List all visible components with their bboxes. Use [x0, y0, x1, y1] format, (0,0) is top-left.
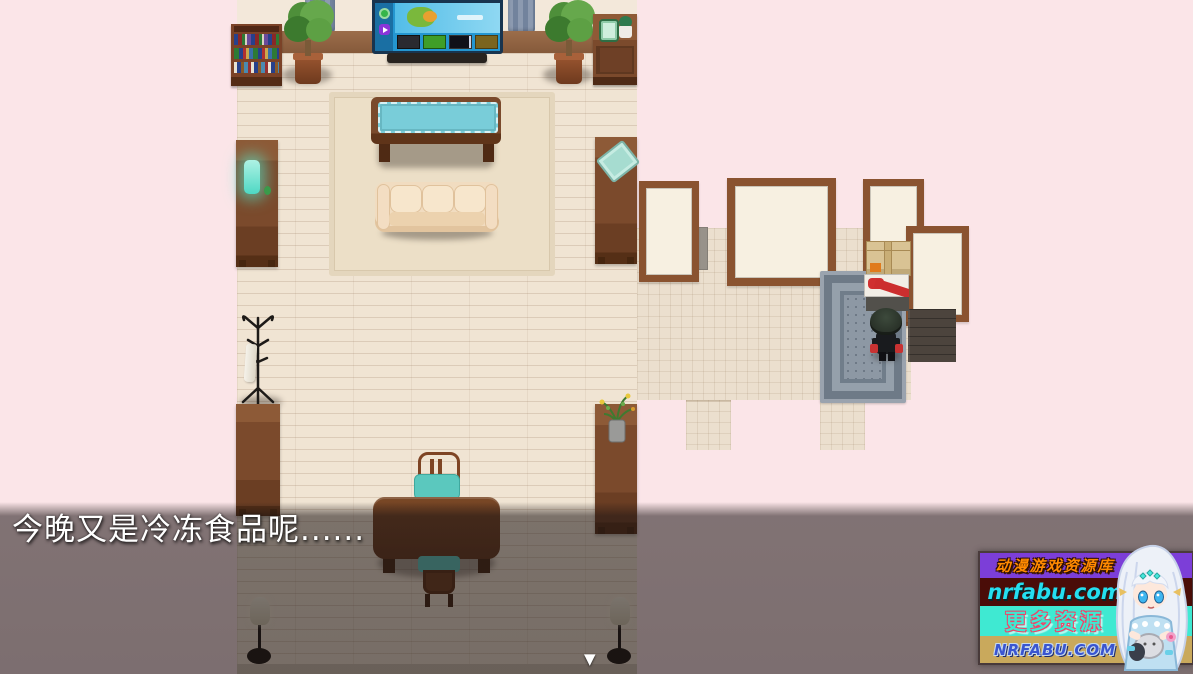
cabinet-lower-left [236, 404, 280, 516]
tv-app-icon-green [379, 8, 390, 19]
dining-chair-top [408, 450, 464, 500]
tv-hero-art [395, 3, 500, 33]
clock-frame [599, 19, 619, 42]
plant-pot [556, 56, 582, 84]
floor-lamp-right [604, 596, 634, 668]
potted-plant-right [541, 0, 595, 90]
sideboard [593, 14, 637, 85]
character-held-item-red [870, 344, 878, 353]
door-panel [906, 226, 969, 322]
small-plant-deco [264, 186, 271, 195]
dining-chair-bottom [414, 554, 462, 610]
coffee-table-leg [379, 144, 390, 162]
potted-plant-left [280, 0, 334, 90]
sofa-arm [377, 184, 390, 230]
entry-floor-tab [820, 400, 865, 450]
tv-screen [372, 0, 503, 54]
lamp-shade [610, 597, 630, 625]
box-crease [867, 250, 910, 251]
tv-soundbar [387, 53, 487, 63]
cabinet-foot [598, 527, 605, 534]
door-panel [727, 178, 836, 286]
cabinet-foot [627, 257, 634, 264]
bookshelf-row [234, 48, 279, 59]
bookshelf-base [231, 77, 282, 86]
red-sign-box [864, 274, 909, 297]
watermark-mascot-girl-image [1107, 542, 1193, 672]
dialogue-text: 今晚又是冷冻食品呢...... [12, 511, 365, 549]
coffee-table [371, 97, 501, 144]
box-label [870, 263, 881, 272]
tv-hero-blob [423, 11, 437, 22]
tv-thumbnail [423, 35, 446, 49]
cabinet-foot [268, 260, 275, 267]
sofa-cushion [454, 185, 486, 213]
tv-thumbnail [475, 35, 498, 49]
sofa-cushion [422, 185, 454, 213]
bookshelf-row [234, 34, 279, 45]
cabinet-foot [627, 527, 634, 534]
dining-table [373, 497, 500, 559]
floor-lamp-left [244, 596, 274, 668]
tv-hero-title [457, 15, 483, 20]
tv-thumbnail [397, 35, 420, 49]
cabinet-foot [239, 260, 246, 267]
sofa [375, 182, 499, 232]
lamp-base [247, 648, 271, 664]
game-viewport[interactable]: 今晚又是冷冻食品呢...... ▼ 动漫游戏资源库 nrfabu.com 更多资… [0, 0, 1193, 674]
plant-foliage [306, 18, 332, 42]
chair-back [423, 570, 455, 594]
cabinet-right [595, 137, 637, 264]
coat-rack [238, 310, 278, 406]
character-hair [870, 308, 902, 335]
character-leg [888, 352, 895, 361]
door-panel [639, 181, 699, 282]
sideboard-base [593, 77, 637, 85]
sofa-seat [389, 212, 485, 226]
bookshelf-top [234, 26, 279, 32]
cardboard-box [866, 241, 911, 276]
chair-slat [430, 459, 434, 475]
sideboard-doors [596, 46, 634, 74]
chair-leg [448, 594, 453, 607]
play-icon [383, 27, 388, 33]
character-held-item-red [895, 344, 903, 353]
sofa-cushion [390, 185, 422, 213]
character-body [876, 332, 896, 354]
plant-foliage [567, 18, 593, 42]
player-character-sprite [866, 306, 906, 364]
cabinet-left [236, 140, 278, 267]
coffee-table-leg [483, 144, 494, 162]
chair-slat [438, 459, 442, 475]
red-stripe [874, 278, 909, 297]
plant-trunk [305, 40, 311, 56]
bookshelf-row [234, 62, 279, 73]
flower-plant [598, 392, 636, 444]
floor-bottom-strip [237, 664, 637, 674]
bookshelf [231, 24, 282, 86]
plant-pot [295, 56, 321, 84]
cabinet-foot [598, 257, 605, 264]
tv-thumbnail [449, 35, 472, 49]
entry-floor-tab [686, 400, 731, 450]
box-tape [884, 242, 892, 275]
coffee-table-top [378, 102, 498, 133]
chair-leg [425, 594, 430, 607]
character-leg [879, 352, 886, 361]
plant-trunk [566, 40, 572, 56]
curtain-right [508, 0, 535, 33]
tv-app-icon-play [379, 24, 390, 35]
lamp-base [607, 648, 631, 664]
entry-step [908, 309, 956, 362]
glow-lamp [244, 160, 260, 194]
continue-arrow-icon[interactable]: ▼ [584, 650, 596, 668]
succulent-pot [619, 26, 632, 38]
book-on-cabinet [596, 140, 641, 184]
lamp-shade [250, 597, 270, 625]
sofa-arm [485, 184, 498, 230]
